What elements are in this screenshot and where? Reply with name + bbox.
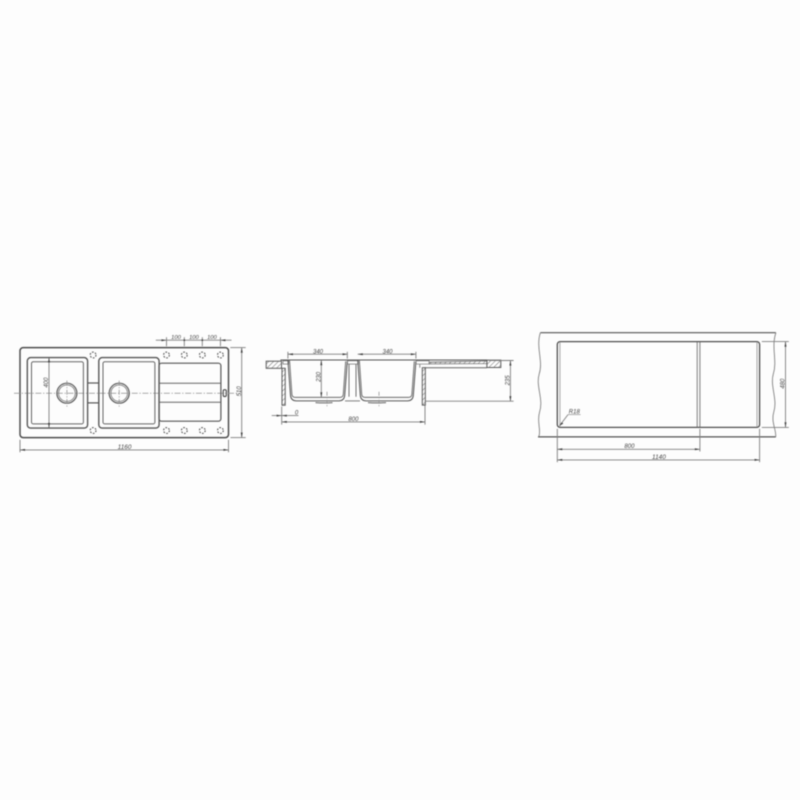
svg-text:100: 100	[207, 335, 217, 341]
svg-text:R18: R18	[569, 410, 581, 416]
svg-text:340: 340	[382, 349, 393, 355]
svg-text:510: 510	[237, 386, 243, 397]
svg-text:230: 230	[316, 371, 322, 383]
svg-text:800: 800	[624, 444, 635, 450]
svg-text:400: 400	[44, 377, 50, 388]
svg-text:100: 100	[171, 335, 181, 341]
svg-text:800: 800	[348, 417, 359, 423]
svg-text:1160: 1160	[118, 444, 132, 451]
svg-text:235: 235	[505, 375, 511, 387]
svg-text:340: 340	[313, 349, 324, 355]
svg-text:480: 480	[781, 378, 787, 389]
svg-text:100: 100	[189, 335, 199, 341]
svg-text:1140: 1140	[652, 454, 666, 461]
